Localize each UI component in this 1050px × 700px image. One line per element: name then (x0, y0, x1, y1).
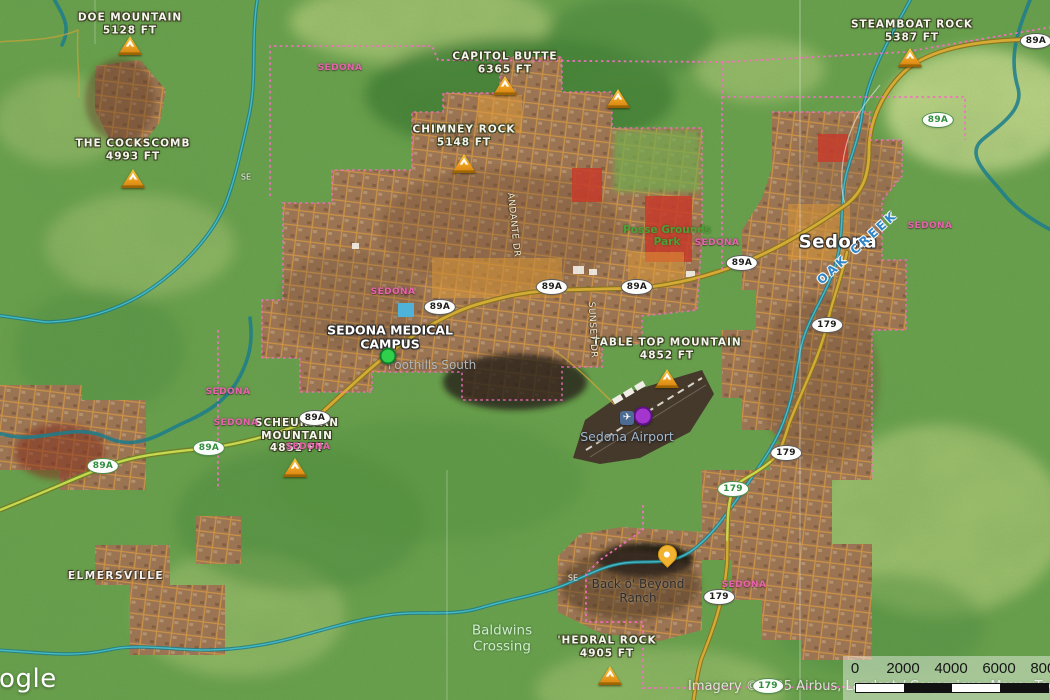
map-canvas[interactable]: DOE MOUNTAIN5128 FTTHE COCKSCOMB4993 FTC… (0, 0, 1050, 700)
sedona-medical-campus-marker[interactable] (380, 348, 397, 365)
scale-tick: 0 (851, 660, 859, 677)
airport-marker[interactable] (634, 407, 653, 426)
satellite-basemap (0, 0, 1050, 700)
scale-tick: 2000 (886, 660, 919, 677)
google-logo[interactable]: Google (0, 664, 57, 694)
scale-bar: 02000400060008000 (843, 656, 1050, 700)
scale-tick: 4000 (934, 660, 967, 677)
scale-tick: 8000 (1030, 660, 1050, 677)
scale-strip (855, 683, 1049, 693)
scale-tick: 6000 (982, 660, 1015, 677)
